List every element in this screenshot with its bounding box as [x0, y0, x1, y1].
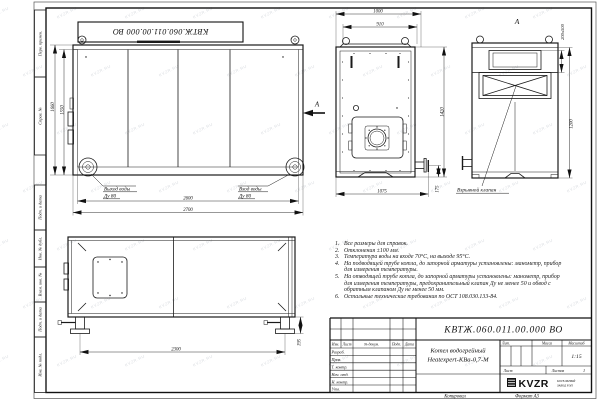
sheets-value: 1 — [583, 368, 585, 373]
dim-200x500: 200х500 — [560, 23, 565, 40]
scale-label: Масштаб — [567, 342, 585, 346]
note-number: 1. — [333, 241, 344, 248]
dim-910: 910 — [376, 23, 384, 28]
row-razrab: Разраб. — [331, 350, 345, 355]
margin-label-podp-data-1: Подп. и дата — [38, 195, 43, 221]
margin-label-perv-primen: Перв. примен. — [38, 31, 43, 57]
margin-label-inv-podl: Инв. № подл. — [38, 353, 43, 378]
top-hatch — [93, 257, 127, 298]
margin-label-vzam-inv: Взам. инв. № — [38, 273, 43, 297]
rear-view-label: А — [514, 17, 520, 26]
note-text: На подводящей трубе котла, до запорной а… — [344, 261, 564, 274]
boiler-rear-view: А 200х500 1200 Взры — [456, 17, 575, 194]
note-item: 4.На подводящей трубе котла, до запорной… — [333, 261, 564, 274]
side-margin-column: Перв. примен. Справ. № Подп. и дата Инв.… — [35, 10, 47, 393]
col-izm: Изм. — [331, 343, 340, 347]
footer-copied-label: Копировал — [443, 395, 466, 400]
logo-text: KVZR — [519, 378, 549, 390]
dim-2600: 2600 — [183, 197, 193, 202]
explosion-valve-label: Взрывной клапан — [457, 187, 497, 194]
note-item: 5.На отводящей трубе котла, до запорной … — [333, 274, 564, 294]
row-prov: Пров. — [331, 357, 342, 362]
dim-1075: 1075 — [377, 190, 387, 195]
inlet-label: Вход воды — [239, 186, 262, 193]
doc-number: КВТЖ.060.011.00.000 ВО — [443, 326, 563, 336]
technical-notes: 1.Все размеры для справок. 2.Отклонения … — [333, 241, 564, 300]
roof-plate — [137, 41, 180, 43]
drawing-sheet: Перв. примен. Справ. № Подп. и дата Инв.… — [0, 0, 600, 400]
product-name-line2: Heatexpert-КВа-0,7-М — [426, 357, 489, 364]
note-text: Температура воды на входе 70°С, на выход… — [344, 254, 564, 261]
support-feet — [58, 317, 295, 334]
factory-logo: KVZR КОТЕЛЬНЫЙ ЗАВОД РЭП — [507, 377, 576, 390]
scale-value: 1:15 — [571, 354, 581, 360]
dim-2300: 2300 — [171, 348, 181, 353]
note-number: 3. — [333, 254, 344, 261]
dim-195: 195 — [298, 338, 303, 346]
top-stamp-number: КВТЖ.060.011.00.000 ВО — [112, 27, 209, 36]
row-tkontr: Т. контр. — [332, 365, 348, 370]
view-direction-arrow: А — [303, 101, 325, 117]
lit-label: Лит. — [501, 342, 510, 346]
mass-label: Масса — [541, 342, 552, 346]
dim-1000: 1000 — [373, 10, 383, 15]
logo-sub2: ЗАВОД РЭП — [557, 384, 574, 388]
note-number: 6. — [333, 294, 344, 301]
row-nkontr: Н. контр. — [331, 379, 349, 384]
margin-label-sprav: Справ. № — [38, 107, 43, 124]
explosion-valve — [479, 73, 551, 99]
row-nachotd: Нач. отд. — [331, 372, 349, 377]
boiler-top-view: 2300 195 — [58, 237, 304, 355]
dim-1550: 1550 — [61, 105, 66, 115]
col-sign: Подп. — [391, 343, 401, 347]
outlet-label: Выход воды — [104, 186, 131, 193]
title-block: КВТЖ.060.011.00.000 ВО Котел водогрейный… — [330, 318, 592, 393]
footer-format-label: Формат А3 — [515, 395, 539, 400]
drain-pipe — [415, 159, 428, 173]
col-doc: № докум. — [363, 343, 379, 347]
row-utv: Утв. — [332, 387, 341, 392]
note-number: 2. — [333, 248, 344, 255]
sheet-edge — [34, 2, 596, 399]
col-list: Лист — [342, 343, 352, 347]
note-text: Все размеры для справок. — [344, 241, 564, 248]
dim-175: 175 — [436, 185, 441, 193]
note-number: 4. — [333, 261, 344, 274]
boiler-side-view: Выход воды Ду 80 Вход воды Ду 80 1660 15… — [50, 36, 325, 216]
note-item: 1.Все размеры для справок. — [333, 241, 564, 248]
note-text: Остальные технические требования по ОСТ … — [344, 294, 564, 301]
sheets-label: Листов — [551, 369, 565, 373]
note-number: 5. — [333, 274, 344, 294]
margin-label-podp-data-2: Подп. и дата — [38, 307, 43, 333]
dim-1200: 1200 — [570, 119, 575, 129]
view-arrow-label: А — [314, 101, 320, 109]
logo-sub1: КОТЕЛЬНЫЙ — [556, 377, 576, 383]
burner-door — [349, 117, 407, 158]
top-reference-stamp: КВТЖ.060.011.00.000 ВО — [78, 22, 243, 42]
boiler-front-view: 1000 910 — [336, 10, 447, 198]
margin-label-inv-dubl: Инв. № дубл. — [38, 237, 43, 261]
dim-2700: 2700 — [183, 208, 193, 213]
note-text: На отводящей трубе котла, до запорной ар… — [344, 274, 564, 294]
rear-pipe-stub — [463, 156, 473, 170]
note-item: 3.Температура воды на входе 70°С, на вых… — [333, 254, 564, 261]
product-name-line1: Котел водогрейный — [429, 348, 486, 355]
sight-hole — [353, 105, 358, 110]
sheet-label: Лист — [503, 369, 513, 373]
dim-1420: 1420 — [441, 107, 446, 117]
dim-1660: 1660 — [51, 102, 56, 112]
note-item: 6.Остальные технические требования по ОС… — [333, 294, 564, 301]
col-date: Дата — [404, 343, 414, 347]
